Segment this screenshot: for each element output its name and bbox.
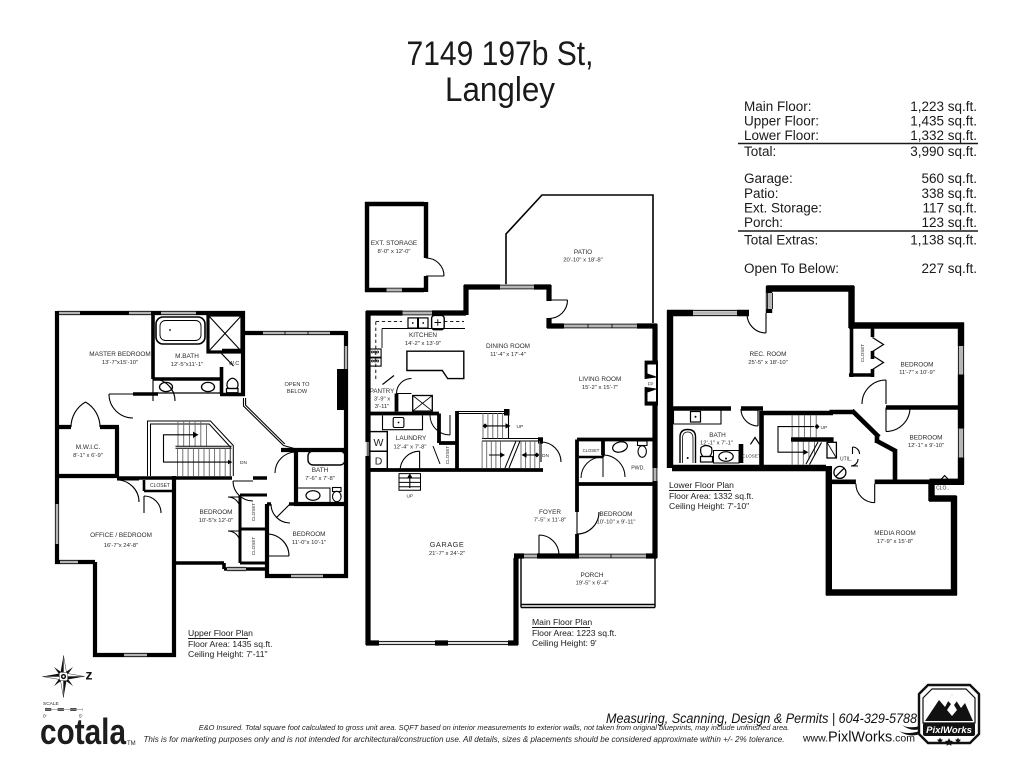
svg-text:1,435 sq.ft.: 1,435 sq.ft.	[910, 114, 977, 129]
svg-text:Total:: Total:	[744, 144, 776, 159]
svg-text:20'-10" x 18'-8": 20'-10" x 18'-8"	[563, 258, 603, 264]
svg-text:Ceiling Height: 9': Ceiling Height: 9'	[532, 638, 597, 648]
svg-text:123 sq.ft.: 123 sq.ft.	[921, 215, 977, 230]
svg-text:CLOSET: CLOSET	[251, 503, 256, 522]
svg-text:1,138 sq.ft.: 1,138 sq.ft.	[910, 233, 977, 248]
svg-text:Upper Floor:: Upper Floor:	[744, 114, 819, 129]
svg-text:M.BATH: M.BATH	[175, 353, 199, 360]
svg-text:1,332 sq.ft.: 1,332 sq.ft.	[910, 128, 977, 143]
svg-text:CLOSET: CLOSET	[583, 448, 600, 453]
svg-text:BELOW: BELOW	[287, 389, 308, 395]
svg-text:12'-1" x 9'-10": 12'-1" x 9'-10"	[908, 443, 944, 449]
svg-text:Porch:: Porch:	[744, 215, 783, 230]
svg-text:REC. ROOM: REC. ROOM	[750, 351, 787, 358]
svg-text:PixlWorks: PixlWorks	[926, 725, 972, 736]
svg-text:CLOSET: CLOSET	[251, 537, 256, 556]
svg-text:11'-4" x 17'-4": 11'-4" x 17'-4"	[490, 352, 526, 358]
svg-text:Open To Below:: Open To Below:	[744, 261, 839, 276]
svg-text:Total Extras:: Total Extras:	[744, 233, 818, 248]
svg-text:FOYER: FOYER	[539, 509, 561, 516]
svg-text:3'-11": 3'-11"	[375, 404, 390, 410]
svg-text:11'-7" x 10'-9": 11'-7" x 10'-9"	[899, 370, 935, 376]
svg-text:11'-0"x 10'-1": 11'-0"x 10'-1"	[292, 540, 326, 546]
svg-text:OPEN TO: OPEN TO	[285, 382, 311, 388]
svg-text:Measuring, Scanning, Design &: Measuring, Scanning, Design & Permits | …	[606, 711, 917, 727]
svg-text:GARAGE: GARAGE	[430, 540, 465, 549]
svg-text:Main Floor Plan: Main Floor Plan	[532, 617, 592, 627]
svg-text:UTIL.: UTIL.	[840, 457, 852, 463]
svg-text:117 sq.ft.: 117 sq.ft.	[922, 201, 977, 216]
svg-text:12'-5"x11'-1": 12'-5"x11'-1"	[171, 362, 204, 368]
svg-text:DN: DN	[542, 453, 549, 459]
svg-text:7149 197b St,: 7149 197b St,	[407, 35, 594, 73]
svg-text:12'-1" x 7'-1": 12'-1" x 7'-1"	[700, 441, 733, 447]
svg-text:LIVING ROOM: LIVING ROOM	[579, 376, 622, 383]
svg-text:MEDIA ROOM: MEDIA ROOM	[874, 530, 916, 537]
svg-text:CLOSET: CLOSET	[445, 446, 450, 465]
svg-text:12'-4" x 7'-8": 12'-4" x 7'-8"	[394, 445, 427, 451]
svg-text:8'-1" x 6'-9": 8'-1" x 6'-9"	[73, 453, 103, 459]
svg-text:Floor Area: 1332 sq.ft.: Floor Area: 1332 sq.ft.	[669, 491, 754, 501]
svg-text:19'-5" x 6'-4": 19'-5" x 6'-4"	[576, 581, 609, 587]
svg-text:EXT. STORAGE: EXT. STORAGE	[371, 240, 417, 247]
svg-text:10'-10" x 9'-11": 10'-10" x 9'-11"	[596, 520, 635, 526]
svg-text:Main Floor:: Main Floor:	[744, 99, 812, 114]
svg-text:Langley: Langley	[445, 71, 555, 109]
svg-text:25'-5" x 18'-10": 25'-5" x 18'-10"	[748, 360, 788, 366]
svg-text:W: W	[374, 437, 384, 449]
svg-text:15'-2" x 15'-7": 15'-2" x 15'-7"	[582, 385, 618, 391]
svg-text:8'-0" x 12'-0": 8'-0" x 12'-0"	[378, 249, 411, 255]
svg-text:TM: TM	[127, 741, 136, 747]
svg-text:M.W.I.C.: M.W.I.C.	[76, 444, 101, 451]
svg-text:CLOSET: CLOSET	[860, 344, 865, 363]
svg-text:338 sq.ft.: 338 sq.ft.	[921, 186, 977, 201]
svg-text:227 sq.ft.: 227 sq.ft.	[921, 261, 977, 276]
svg-text:UP: UP	[517, 424, 524, 430]
svg-text:16'-7"x 24'-8": 16'-7"x 24'-8"	[104, 543, 139, 549]
svg-text:CLO..: CLO..	[936, 486, 949, 492]
svg-text:PATIO: PATIO	[574, 249, 592, 256]
svg-text:PWD.: PWD.	[631, 466, 645, 472]
svg-text:BEDROOM: BEDROOM	[599, 511, 632, 518]
svg-text:17'-9" x 15'-8": 17'-9" x 15'-8"	[877, 539, 913, 545]
svg-text:MASTER BEDROOM: MASTER BEDROOM	[89, 351, 150, 358]
svg-text:Lower Floor Plan: Lower Floor Plan	[669, 480, 734, 490]
svg-text:BEDROOM: BEDROOM	[909, 435, 942, 442]
svg-text:z: z	[86, 667, 93, 683]
svg-text:UP: UP	[821, 425, 828, 431]
svg-text:OFFICE / BEDROOM: OFFICE / BEDROOM	[90, 532, 152, 539]
svg-text:10'-5"x 12'-0": 10'-5"x 12'-0"	[199, 518, 234, 524]
svg-text:BEDROOM: BEDROOM	[292, 531, 325, 538]
svg-text:CLOSET: CLOSET	[742, 454, 761, 459]
svg-text:W.C: W.C	[229, 361, 240, 367]
svg-text:BEDROOM: BEDROOM	[900, 362, 933, 369]
svg-text:3,990 sq.ft.: 3,990 sq.ft.	[910, 144, 977, 159]
svg-text:Ceiling Height: 7'-11": Ceiling Height: 7'-11"	[188, 649, 268, 659]
svg-text:3'-9" x: 3'-9" x	[374, 397, 390, 403]
svg-text:7'-5" x 11'-8": 7'-5" x 11'-8"	[534, 518, 567, 524]
svg-text:21'-7" x 24'-2": 21'-7" x 24'-2"	[429, 551, 465, 557]
svg-text:Garage:: Garage:	[744, 171, 793, 186]
svg-text:Patio:: Patio:	[744, 186, 779, 201]
svg-text:Upper Floor Plan: Upper Floor Plan	[188, 628, 253, 638]
svg-text:Lower Floor:: Lower Floor:	[744, 128, 819, 143]
svg-text:PANTRY: PANTRY	[370, 388, 395, 395]
svg-text:BATH: BATH	[709, 432, 726, 439]
svg-text:SCALE: SCALE	[43, 701, 59, 707]
svg-text:Ext. Storage:: Ext. Storage:	[744, 201, 822, 216]
svg-text:This is for marketing purposes: This is for marketing purposes only and …	[143, 735, 784, 744]
svg-text:7'-6" x 7'-8": 7'-6" x 7'-8"	[305, 476, 335, 482]
svg-text:FP: FP	[648, 382, 654, 387]
svg-text:1,223 sq.ft.: 1,223 sq.ft.	[910, 99, 977, 114]
svg-text:13'-7"x15'-10": 13'-7"x15'-10"	[102, 360, 138, 366]
svg-text:BATH: BATH	[312, 467, 329, 474]
svg-text:Floor Area: 1435 sq.ft.: Floor Area: 1435 sq.ft.	[188, 639, 273, 649]
svg-text:D: D	[375, 456, 383, 468]
svg-text:www.PixlWorks.com: www.PixlWorks.com	[802, 730, 915, 746]
svg-text:BEDROOM: BEDROOM	[199, 509, 232, 516]
svg-text:14'-2" x 13'-9": 14'-2" x 13'-9"	[405, 341, 441, 347]
svg-text:KITCHEN: KITCHEN	[409, 332, 437, 339]
svg-text:cotala: cotala	[40, 711, 127, 752]
svg-text:Floor Area: 1223 sq.ft.: Floor Area: 1223 sq.ft.	[532, 628, 617, 638]
svg-text:CLOSET: CLOSET	[150, 483, 170, 489]
svg-text:Ceiling Height: 7'-10": Ceiling Height: 7'-10"	[669, 501, 749, 511]
svg-text:560 sq.ft.: 560 sq.ft.	[921, 171, 977, 186]
svg-text:DINING ROOM: DINING ROOM	[486, 343, 530, 350]
svg-text:UP: UP	[406, 494, 413, 500]
svg-text:LAUNDRY: LAUNDRY	[396, 435, 427, 442]
svg-text:DN: DN	[240, 460, 247, 466]
svg-text:PORCH: PORCH	[580, 572, 603, 579]
